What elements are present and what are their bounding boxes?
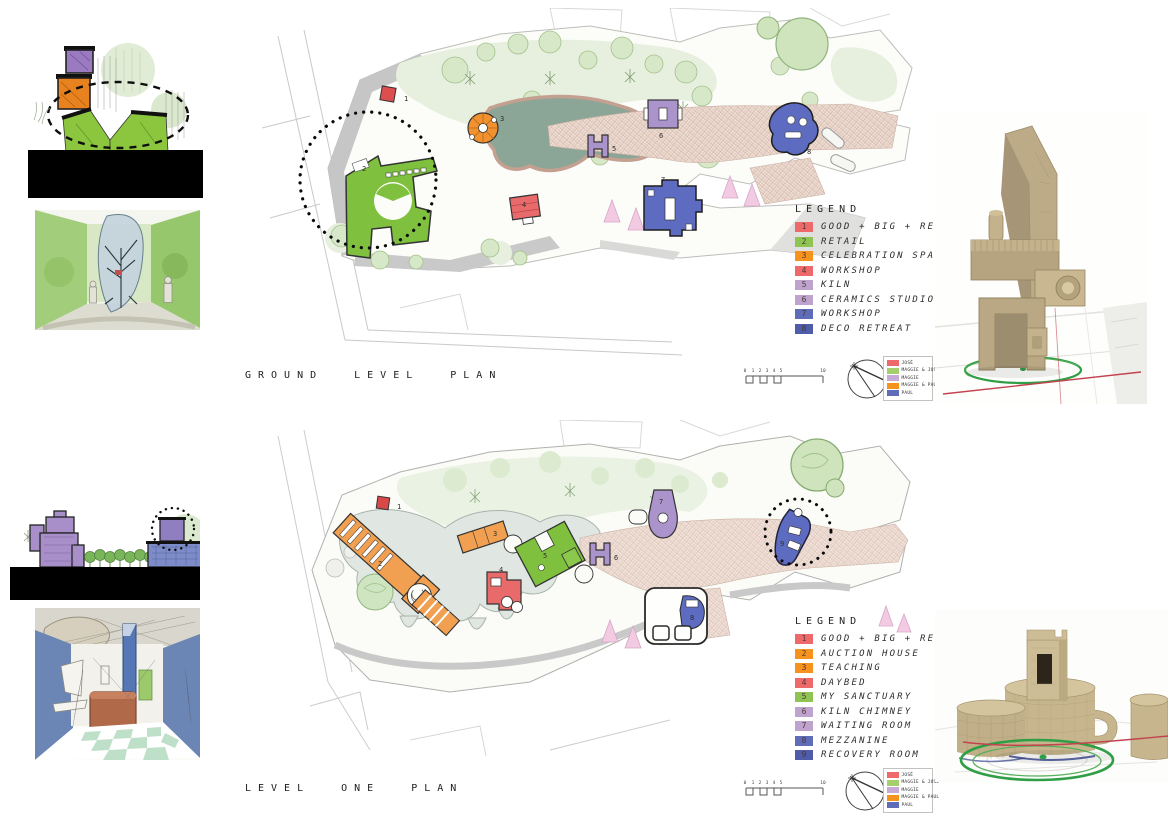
sketch-ground-mass — [28, 150, 203, 198]
level-one-scale-bar: 0 1 2 3 4 5 10 — [742, 774, 830, 800]
scale-tick: 3 — [766, 780, 769, 786]
marker-7: 7 — [661, 176, 665, 184]
attribution-label: PAUL — [902, 391, 914, 396]
scale-tick: 5 — [780, 780, 783, 786]
legend-number: 4 — [802, 678, 807, 688]
ground-scale-bar: 0 1 2 3 4 5 10 — [742, 362, 830, 388]
sketch-red-accent — [115, 270, 122, 275]
model-photo-drum-mug — [935, 610, 1168, 782]
sketch-machine-elevation — [10, 505, 200, 600]
attribution-swatch — [887, 383, 899, 389]
attribution-swatch — [887, 772, 899, 778]
scale-tick: 5 — [780, 368, 783, 374]
legend-label: WORKSHOP — [821, 266, 882, 276]
marker-8: 8 — [690, 614, 694, 622]
model-tower — [1027, 630, 1067, 700]
ground-attribution-legend: JOSÉ MAGGIE & JOSÉ MAGGIE MAGGIE & PAUL … — [883, 356, 933, 401]
sketch-green-door — [139, 670, 152, 700]
legend-number: 3 — [802, 251, 807, 261]
legend-swatch: 6 — [795, 295, 813, 305]
attribution-swatch — [887, 360, 899, 366]
attribution-swatch — [887, 780, 899, 786]
legend-label: GOOD + BIG + RED — [821, 222, 943, 232]
legend-number: 2 — [802, 649, 807, 659]
legend-number: 5 — [802, 692, 807, 702]
scale-tick: 0 — [744, 368, 747, 374]
legend-label: AUCTION HOUSE — [821, 649, 920, 659]
sketch-green-v-walls — [62, 109, 168, 152]
legend-number: 8 — [802, 736, 807, 746]
scale-tick-end: 10 — [820, 368, 826, 374]
scale-tick: 4 — [773, 368, 776, 374]
legend-label: DECO RETREAT — [821, 324, 912, 334]
legend-swatch: 9 — [795, 750, 813, 760]
sketch-plant-scribble — [34, 102, 50, 124]
legend-number: 2 — [802, 237, 807, 247]
legend-swatch: 2 — [795, 649, 813, 659]
attribution-item: MAGGIE & PAUL — [887, 795, 929, 801]
legend-label: RECOVERY ROOM — [821, 750, 920, 760]
attribution-item: MAGGIE — [887, 787, 929, 793]
marker-1: 1 — [397, 503, 401, 511]
level-one-attribution-legend: JOSÉ MAGGIE & JOSÉ MAGGIE MAGGIE & PAUL … — [883, 768, 933, 813]
marker-5: 5 — [612, 145, 616, 153]
sketch-hedge — [85, 550, 156, 568]
legend-swatch: 4 — [795, 266, 813, 276]
attribution-swatch — [887, 375, 899, 381]
sketch-section-good-big-red — [28, 28, 203, 198]
scale-tick-end: 10 — [820, 780, 826, 786]
attribution-label: MAGGIE — [902, 788, 919, 793]
attribution-swatch — [887, 795, 899, 801]
legend-label: MEZZANINE — [821, 736, 890, 746]
legend-label: CERAMICS STUDIO — [821, 295, 935, 305]
scale-tick: 3 — [766, 368, 769, 374]
ground-plan-title: GROUND LEVEL PLAN — [245, 370, 502, 381]
big-tree — [776, 18, 828, 70]
scale-tick: 0 — [744, 780, 747, 786]
attribution-item: MAGGIE — [887, 375, 929, 381]
attribution-label: MAGGIE & JOSÉ — [902, 368, 940, 373]
legend-label: WORKSHOP — [821, 309, 882, 319]
attribution-label: MAGGIE & PAUL — [902, 795, 940, 800]
model-photo-chimney-tower — [935, 112, 1147, 404]
legend-swatch: 8 — [795, 324, 813, 334]
building-7-workshop — [644, 180, 702, 236]
legend-swatch: 1 — [795, 634, 813, 644]
marker-7: 7 — [659, 498, 663, 506]
scale-tick: 2 — [759, 780, 762, 786]
attribution-item: MAGGIE & JOSÉ — [887, 780, 929, 786]
marker-1: 1 — [404, 95, 408, 103]
attribution-swatch — [887, 368, 899, 374]
legend-number: 6 — [802, 707, 807, 717]
attribution-label: PAUL — [902, 803, 914, 808]
marker-8: 8 — [807, 148, 811, 156]
marker-6: 6 — [659, 132, 663, 140]
legend-swatch: 3 — [795, 663, 813, 673]
sketch-purple-machine-left — [30, 511, 84, 567]
legend-swatch: 5 — [795, 692, 813, 702]
small-tree — [826, 479, 844, 497]
attribution-item: JOSÉ — [887, 360, 929, 366]
marker-2: 2 — [362, 165, 366, 173]
building-1-good-big-red — [376, 496, 390, 510]
scale-tick: 1 — [752, 780, 755, 786]
building-8-mezzanine — [645, 588, 707, 644]
marker-6: 6 — [614, 554, 618, 562]
level-one-plan-title: LEVEL ONE PLAN — [245, 783, 463, 794]
presentation-board: 1 2 3 4 5 6 7 8 — [0, 0, 1168, 826]
legend-label: KILN CHIMNEY — [821, 707, 912, 717]
legend-number: 9 — [802, 750, 807, 760]
legend-swatch: 5 — [795, 280, 813, 290]
attribution-swatch — [887, 802, 899, 808]
sketch-ground-mass — [10, 567, 200, 600]
sketch-blue-interior — [35, 608, 200, 760]
legend-number: 5 — [802, 280, 807, 290]
legend-swatch: 3 — [795, 251, 813, 261]
building-1-good-big-red — [380, 86, 396, 102]
legend-swatch: 8 — [795, 736, 813, 746]
marker-3: 3 — [493, 530, 497, 538]
level-one-north-arrow — [842, 768, 888, 814]
legend-number: 1 — [802, 634, 807, 644]
scale-tick: 2 — [759, 368, 762, 374]
attribution-item: MAGGIE & JOSÉ — [887, 368, 929, 374]
attribution-item: MAGGIE & PAUL — [887, 383, 929, 389]
legend-label: MY SANCTUARY — [821, 692, 912, 702]
attribution-label: JOSÉ — [902, 361, 914, 366]
legend-label: KILN — [821, 280, 851, 290]
legend-swatch: 4 — [795, 678, 813, 688]
building-3-celebration-space — [468, 113, 498, 143]
sketch-purple-box — [64, 46, 95, 73]
legend-label: RETAIL — [821, 237, 867, 247]
sketch-green-interior — [35, 210, 200, 330]
building-6-ceramics-studio — [644, 100, 682, 128]
legend-swatch: 1 — [795, 222, 813, 232]
attribution-item: JOSÉ — [887, 772, 929, 778]
marker-2: 2 — [378, 560, 382, 568]
attribution-label: MAGGIE — [902, 376, 919, 381]
attribution-swatch — [887, 390, 899, 396]
small-tree — [757, 17, 779, 39]
sketch-orange-box — [56, 74, 92, 109]
legend-number: 7 — [802, 309, 807, 319]
legend-label: GOOD + BIG + RED — [821, 634, 943, 644]
scale-tick: 4 — [773, 780, 776, 786]
legend-label: CELEBRATION SPACE — [821, 251, 951, 261]
attribution-label: JOSÉ — [902, 773, 914, 778]
attribution-item: PAUL — [887, 390, 929, 396]
attribution-label: MAGGIE & JOSÉ — [902, 780, 940, 785]
attribution-label: MAGGIE & PAUL — [902, 383, 940, 388]
legend-number: 3 — [802, 663, 807, 673]
marker-3: 3 — [500, 115, 504, 123]
marker-4: 4 — [499, 566, 503, 574]
legend-number: 8 — [802, 324, 807, 334]
legend-swatch: 2 — [795, 237, 813, 247]
scale-tick: 1 — [752, 368, 755, 374]
attribution-item: PAUL — [887, 802, 929, 808]
legend-swatch: 7 — [795, 721, 813, 731]
attribution-swatch — [887, 787, 899, 793]
legend-label: WAITING ROOM — [821, 721, 912, 731]
legend-number: 7 — [802, 721, 807, 731]
marker-9: 9 — [780, 540, 784, 548]
legend-number: 1 — [802, 222, 807, 232]
legend-number: 6 — [802, 295, 807, 305]
legend-number: 4 — [802, 266, 807, 276]
marker-5: 5 — [543, 552, 547, 560]
legend-label: DAYBED — [821, 678, 867, 688]
marker-4: 4 — [522, 201, 526, 209]
legend-label: TEACHING — [821, 663, 882, 673]
legend-swatch: 6 — [795, 707, 813, 717]
legend-swatch: 7 — [795, 309, 813, 319]
